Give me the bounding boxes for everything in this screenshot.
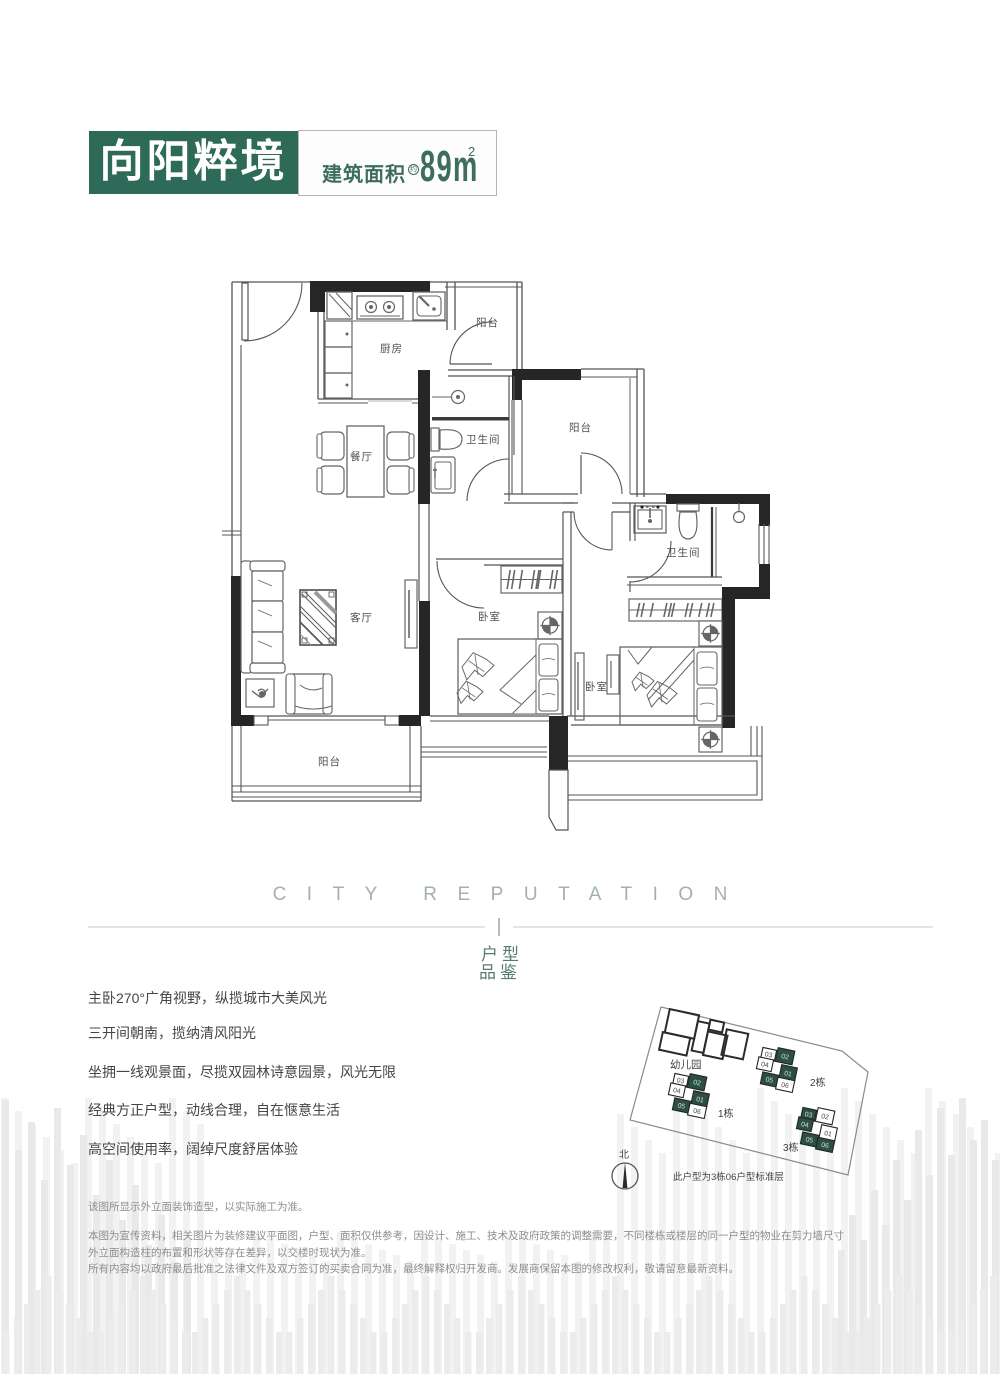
svg-text:北: 北 [619, 1149, 629, 1161]
svg-text:此户型为3栋06户型标准层: 此户型为3栋06户型标准层 [673, 1171, 784, 1183]
svg-text:餐厅: 餐厅 [350, 450, 373, 463]
svg-text:客厅: 客厅 [350, 611, 373, 624]
svg-text:3栋: 3栋 [783, 1141, 799, 1154]
svg-text:阳台: 阳台 [318, 755, 341, 768]
svg-text:卫生间: 卫生间 [666, 546, 701, 559]
svg-text:幼儿园: 幼儿园 [670, 1058, 702, 1071]
svg-text:卫生间: 卫生间 [466, 433, 501, 446]
svg-text:卧室: 卧室 [585, 680, 608, 693]
svg-text:阳台: 阳台 [476, 316, 499, 329]
svg-text:阳台: 阳台 [569, 421, 592, 434]
svg-text:厨房: 厨房 [380, 342, 403, 355]
svg-text:1栋: 1栋 [718, 1107, 734, 1120]
svg-text:卧室: 卧室 [478, 610, 501, 623]
svg-text:2栋: 2栋 [810, 1076, 826, 1089]
